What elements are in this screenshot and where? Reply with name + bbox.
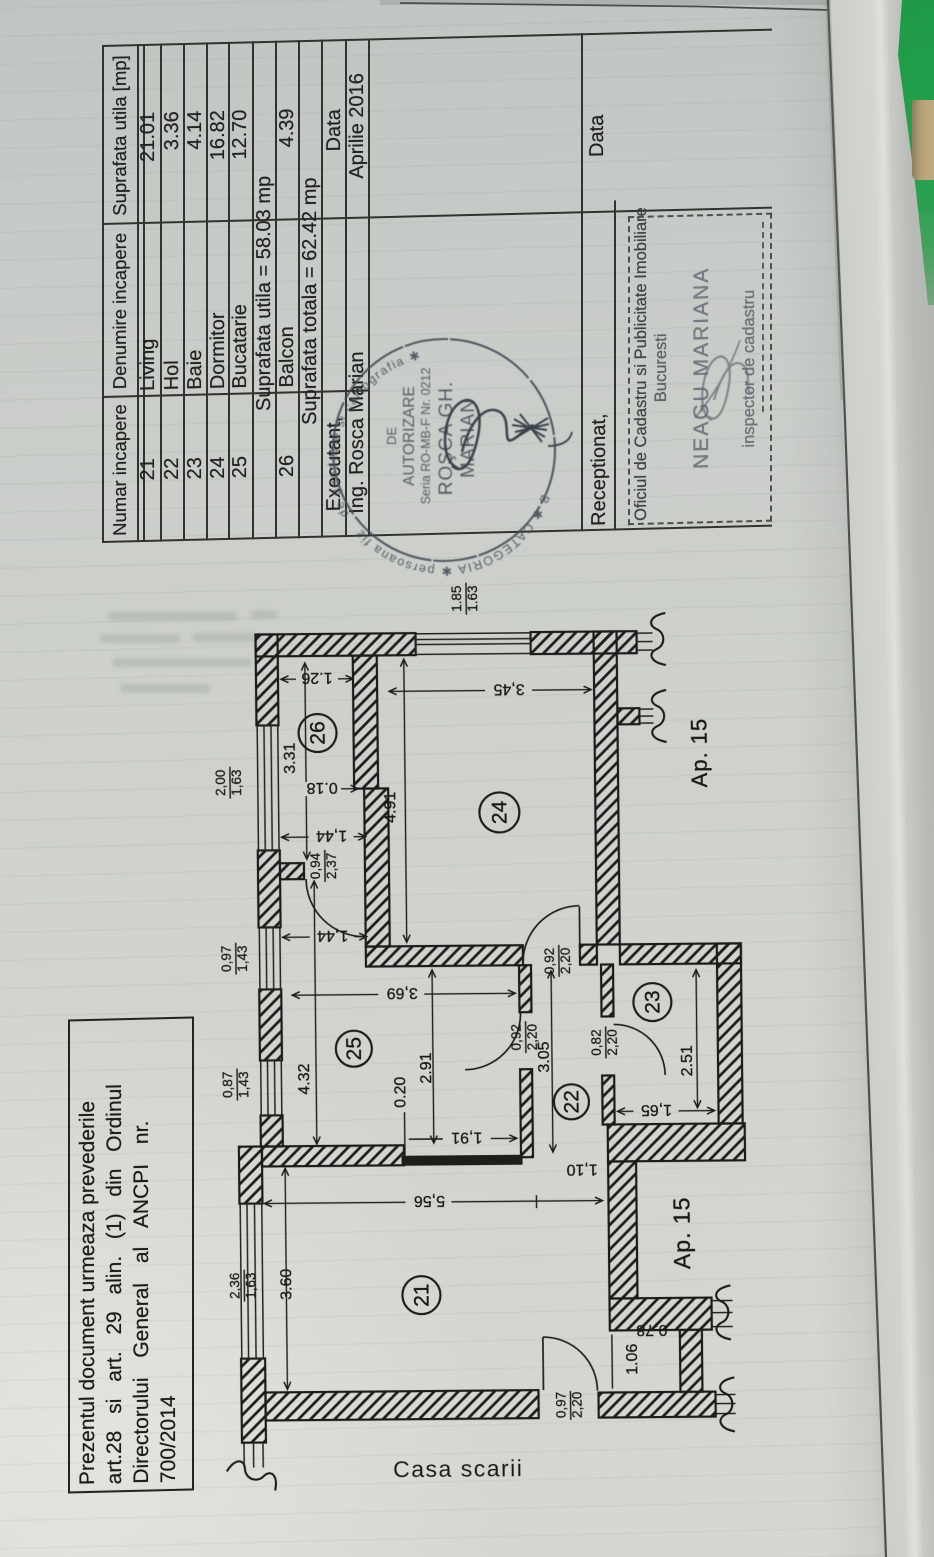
svg-text:2,20: 2,20 xyxy=(558,948,573,974)
svg-text:Ap. 15: Ap. 15 xyxy=(686,718,712,788)
svg-text:0,97: 0,97 xyxy=(553,1392,568,1418)
svg-text:25: 25 xyxy=(343,1037,366,1061)
svg-text:1,63: 1,63 xyxy=(243,1272,258,1298)
svg-text:1,44: 1,44 xyxy=(316,827,347,844)
svg-text:3,69: 3,69 xyxy=(387,984,418,1001)
svg-text:23: 23 xyxy=(641,990,664,1014)
svg-text:0,92: 0,92 xyxy=(509,1024,524,1050)
svg-text:0,97: 0,97 xyxy=(219,946,234,972)
svg-text:3.05: 3.05 xyxy=(536,1041,553,1072)
svg-text:1.85: 1.85 xyxy=(449,586,464,612)
svg-text:1,43: 1,43 xyxy=(235,945,250,971)
svg-text:2,36: 2,36 xyxy=(227,1273,242,1299)
svg-text:1,65: 1,65 xyxy=(641,1101,672,1118)
svg-text:26: 26 xyxy=(306,721,329,745)
svg-text:22: 22 xyxy=(560,1090,583,1114)
svg-text:0.18: 0.18 xyxy=(306,779,337,796)
svg-text:24: 24 xyxy=(488,800,511,824)
svg-text:1.06: 1.06 xyxy=(624,1344,641,1375)
svg-text:3,45: 3,45 xyxy=(493,680,524,697)
svg-text:2,20: 2,20 xyxy=(605,1029,620,1055)
svg-text:2,00: 2,00 xyxy=(213,770,228,796)
svg-text:1,91: 1,91 xyxy=(451,1129,482,1146)
svg-text:1,44: 1,44 xyxy=(317,927,348,944)
svg-text:1,10: 1,10 xyxy=(566,1161,597,1178)
svg-text:1.63: 1.63 xyxy=(465,585,480,611)
svg-text:0,87: 0,87 xyxy=(220,1072,235,1098)
svg-text:0,92: 0,92 xyxy=(542,948,557,974)
svg-text:4.91: 4.91 xyxy=(382,792,399,823)
svg-text:3.60: 3.60 xyxy=(278,1269,295,1300)
svg-text:4.32: 4.32 xyxy=(296,1063,313,1094)
svg-text:0,82: 0,82 xyxy=(589,1029,604,1055)
svg-text:0.20: 0.20 xyxy=(392,1077,409,1108)
svg-text:2.91: 2.91 xyxy=(418,1052,435,1083)
svg-text:1,63: 1,63 xyxy=(229,769,244,795)
svg-text:1.26: 1.26 xyxy=(301,669,332,686)
svg-text:0,78: 0,78 xyxy=(636,1321,667,1338)
svg-text:Ap. 15: Ap. 15 xyxy=(668,1196,695,1269)
svg-text:2,37: 2,37 xyxy=(324,853,339,879)
svg-text:2,20: 2,20 xyxy=(569,1392,584,1418)
svg-text:0,94: 0,94 xyxy=(308,852,323,879)
svg-text:1,43: 1,43 xyxy=(236,1071,251,1097)
svg-text:5,56: 5,56 xyxy=(414,1192,445,1209)
svg-text:3.31: 3.31 xyxy=(282,742,299,773)
svg-text:2.51: 2.51 xyxy=(679,1045,696,1076)
svg-text:21: 21 xyxy=(410,1283,433,1307)
svg-text:Casa scarii: Casa scarii xyxy=(393,1455,524,1482)
